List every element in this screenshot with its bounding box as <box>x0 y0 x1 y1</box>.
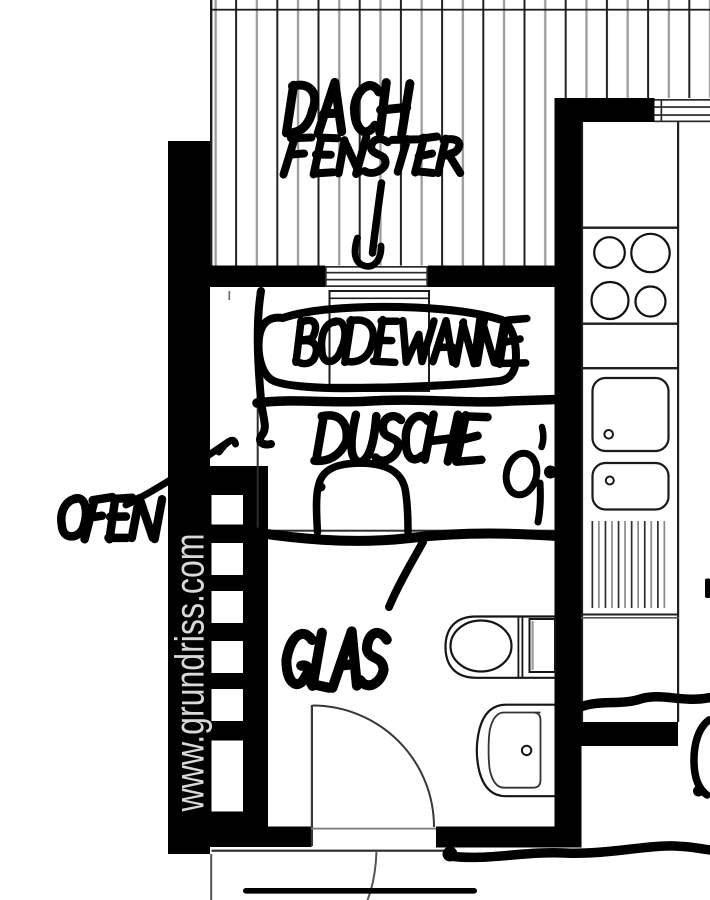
svg-text:www.grundriss.com: www.grundriss.com <box>167 534 213 813</box>
